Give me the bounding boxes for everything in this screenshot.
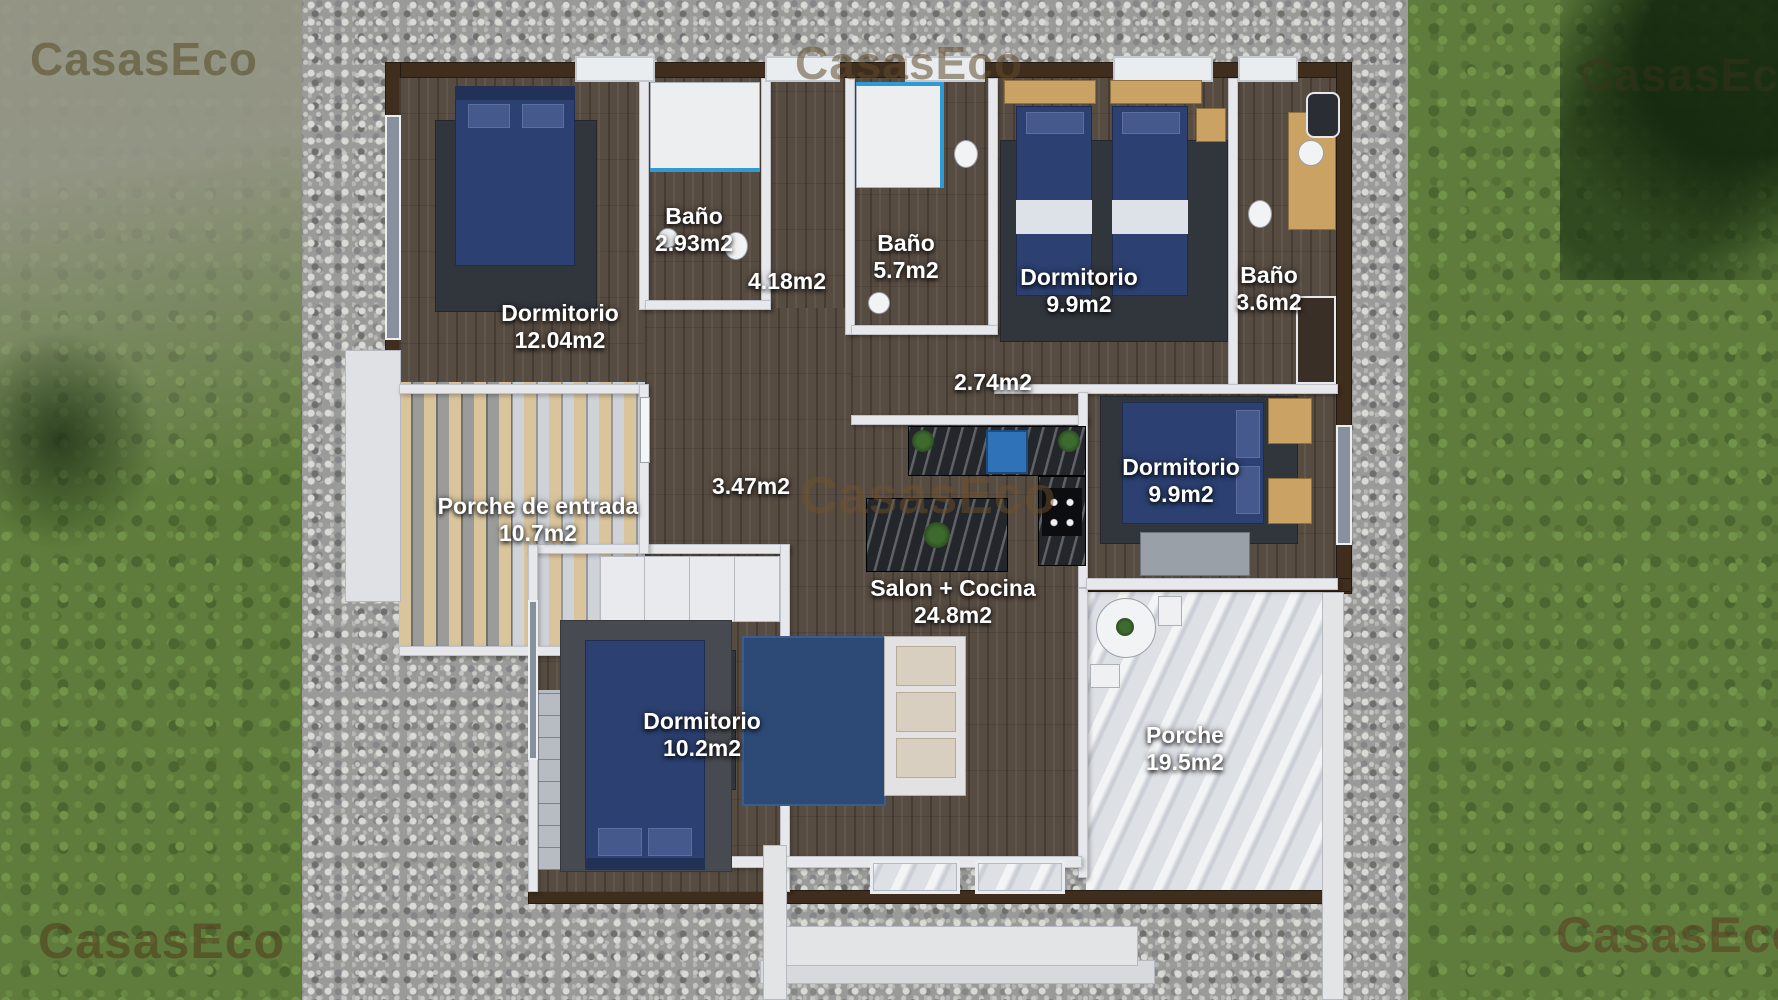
desk-dorm99t-2 <box>1110 80 1202 104</box>
watermark-top-center: CasasEco <box>795 36 1023 90</box>
room-name: Dormitorio <box>602 708 802 735</box>
pillow-dorm99r-1 <box>1236 410 1260 458</box>
garden-wall-bottom-left <box>763 845 787 1000</box>
room-name: Dormitorio <box>460 300 660 327</box>
window-left-dorm102 <box>528 600 538 760</box>
entry-steps-slab <box>345 350 401 602</box>
room-name: Baño <box>614 203 774 230</box>
window-top-5 <box>1238 56 1298 82</box>
wall-dorm99r-porche <box>1086 578 1338 590</box>
wall-bath293-bottom <box>645 300 771 310</box>
room-label-bano-293: Baño 2.93m2 <box>614 203 774 257</box>
room-label-pasillo-274: 2.74m2 <box>913 369 1073 396</box>
room-area: 24.8m2 <box>833 602 1073 629</box>
room-area: 3.6m2 <box>1189 289 1349 316</box>
bed-dorm12-headboard <box>455 86 575 100</box>
watermark-bottom-left: CasasEco <box>38 912 285 970</box>
sofa-cushion-1 <box>896 646 956 686</box>
wall-hall-bath57 <box>845 78 855 335</box>
wardrobe-dorm102 <box>600 556 780 622</box>
room-area: 9.9m2 <box>1081 481 1281 508</box>
window-salon-bottom-1 <box>870 860 960 894</box>
room-name: Porche <box>1085 722 1285 749</box>
wall-dorm12-bath <box>639 78 649 310</box>
toilet-bano36 <box>1248 200 1272 228</box>
room-area: 12.04m2 <box>460 327 660 354</box>
sink-bano36 <box>1298 140 1324 166</box>
room-label-bano-57: Baño 5.7m2 <box>826 230 986 284</box>
garden-wall-right <box>1322 592 1344 1000</box>
porche-table-plant <box>1116 618 1134 636</box>
shower-bano57 <box>856 82 944 188</box>
bed-dorm12-pillow-2 <box>522 104 564 128</box>
shower-glass-bano57-side <box>940 82 944 188</box>
room-area: 19.5m2 <box>1085 749 1285 776</box>
room-name: Dormitorio <box>1081 454 1281 481</box>
pillow-dorm102-1 <box>598 828 642 856</box>
blanket-dorm99t-1 <box>1016 200 1092 234</box>
room-name: Porche de entrada <box>408 493 668 520</box>
room-label-dormitorio-99-doble: Dormitorio 9.9m2 <box>1081 454 1281 508</box>
room-label-porche: Porche 19.5m2 <box>1085 722 1285 776</box>
porche-chair-1 <box>1090 664 1120 688</box>
grass-shrub <box>0 330 160 550</box>
room-name: Baño <box>826 230 986 257</box>
bed-dorm102-headboard <box>585 858 705 870</box>
room-label-dormitorio-99-twin: Dormitorio 9.9m2 <box>979 264 1179 318</box>
room-area: 9.9m2 <box>979 291 1179 318</box>
room-label-dormitorio-102: Dormitorio 10.2m2 <box>602 708 802 762</box>
room-label-porche-entrada: Porche de entrada 10.7m2 <box>408 493 668 547</box>
window-right-dorm99r <box>1336 425 1352 545</box>
pillow-dorm102-2 <box>648 828 692 856</box>
window-left-dorm12 <box>385 115 401 340</box>
pillow-dorm99t-2 <box>1122 112 1180 134</box>
toilet-bano57 <box>954 140 978 168</box>
sofa-cushion-3 <box>896 738 956 778</box>
watermark-top-right: CasasEco <box>1580 48 1778 102</box>
nightstand-dorm99t <box>1196 108 1226 142</box>
room-label-dormitorio-12: Dormitorio 12.04m2 <box>460 300 660 354</box>
shower-bano293 <box>650 82 760 170</box>
window-top-4 <box>1113 56 1213 82</box>
bushes-top-right <box>1560 0 1778 280</box>
watermark-top-left: CasasEco <box>30 32 258 86</box>
watermark-center: CasasEco <box>800 466 1057 526</box>
kitchen-plant-right <box>1058 430 1080 452</box>
shower-glass-bano293 <box>650 168 760 172</box>
room-area: 10.2m2 <box>602 735 802 762</box>
room-name: Salon + Cocina <box>833 575 1073 602</box>
mirror-bano36 <box>1306 92 1340 138</box>
room-name: Dormitorio <box>979 264 1179 291</box>
front-door <box>641 398 649 462</box>
window-top-1 <box>575 56 655 82</box>
room-label-bano-36: Baño 3.6m2 <box>1189 262 1349 316</box>
sofa-cushion-2 <box>896 692 956 732</box>
dresser-dorm99r <box>1140 532 1250 576</box>
watermark-bottom-right: CasasEco <box>1556 906 1778 964</box>
window-salon-bottom-2 <box>975 860 1065 894</box>
blanket-dorm99t-2 <box>1112 200 1188 234</box>
wall-dorm12-bottom <box>399 384 645 394</box>
bed-dorm12-pillow-1 <box>468 104 510 128</box>
room-area: 2.74m2 <box>913 369 1073 396</box>
kitchen-plant-left <box>912 430 934 452</box>
wall-corridor-bottom <box>851 415 1088 425</box>
wall-dorm99t-bath36 <box>1228 78 1238 392</box>
walkway-step <box>778 926 1138 966</box>
aerial-floorplan-render: Dormitorio 12.04m2 Baño 2.93m2 4.18m2 Ba… <box>0 0 1778 1000</box>
nightstand-dorm99r-1 <box>1268 398 1312 444</box>
room-area: 2.93m2 <box>614 230 774 257</box>
room-area: 5.7m2 <box>826 257 986 284</box>
pillow-dorm99t-1 <box>1026 112 1084 134</box>
room-area: 10.7m2 <box>408 520 668 547</box>
porche-chair-2 <box>1158 596 1182 626</box>
wall-bath57-bottom <box>851 325 998 335</box>
room-name: Baño <box>1189 262 1349 289</box>
room-label-salon-cocina: Salon + Cocina 24.8m2 <box>833 575 1073 629</box>
sink-bano57 <box>868 292 890 314</box>
